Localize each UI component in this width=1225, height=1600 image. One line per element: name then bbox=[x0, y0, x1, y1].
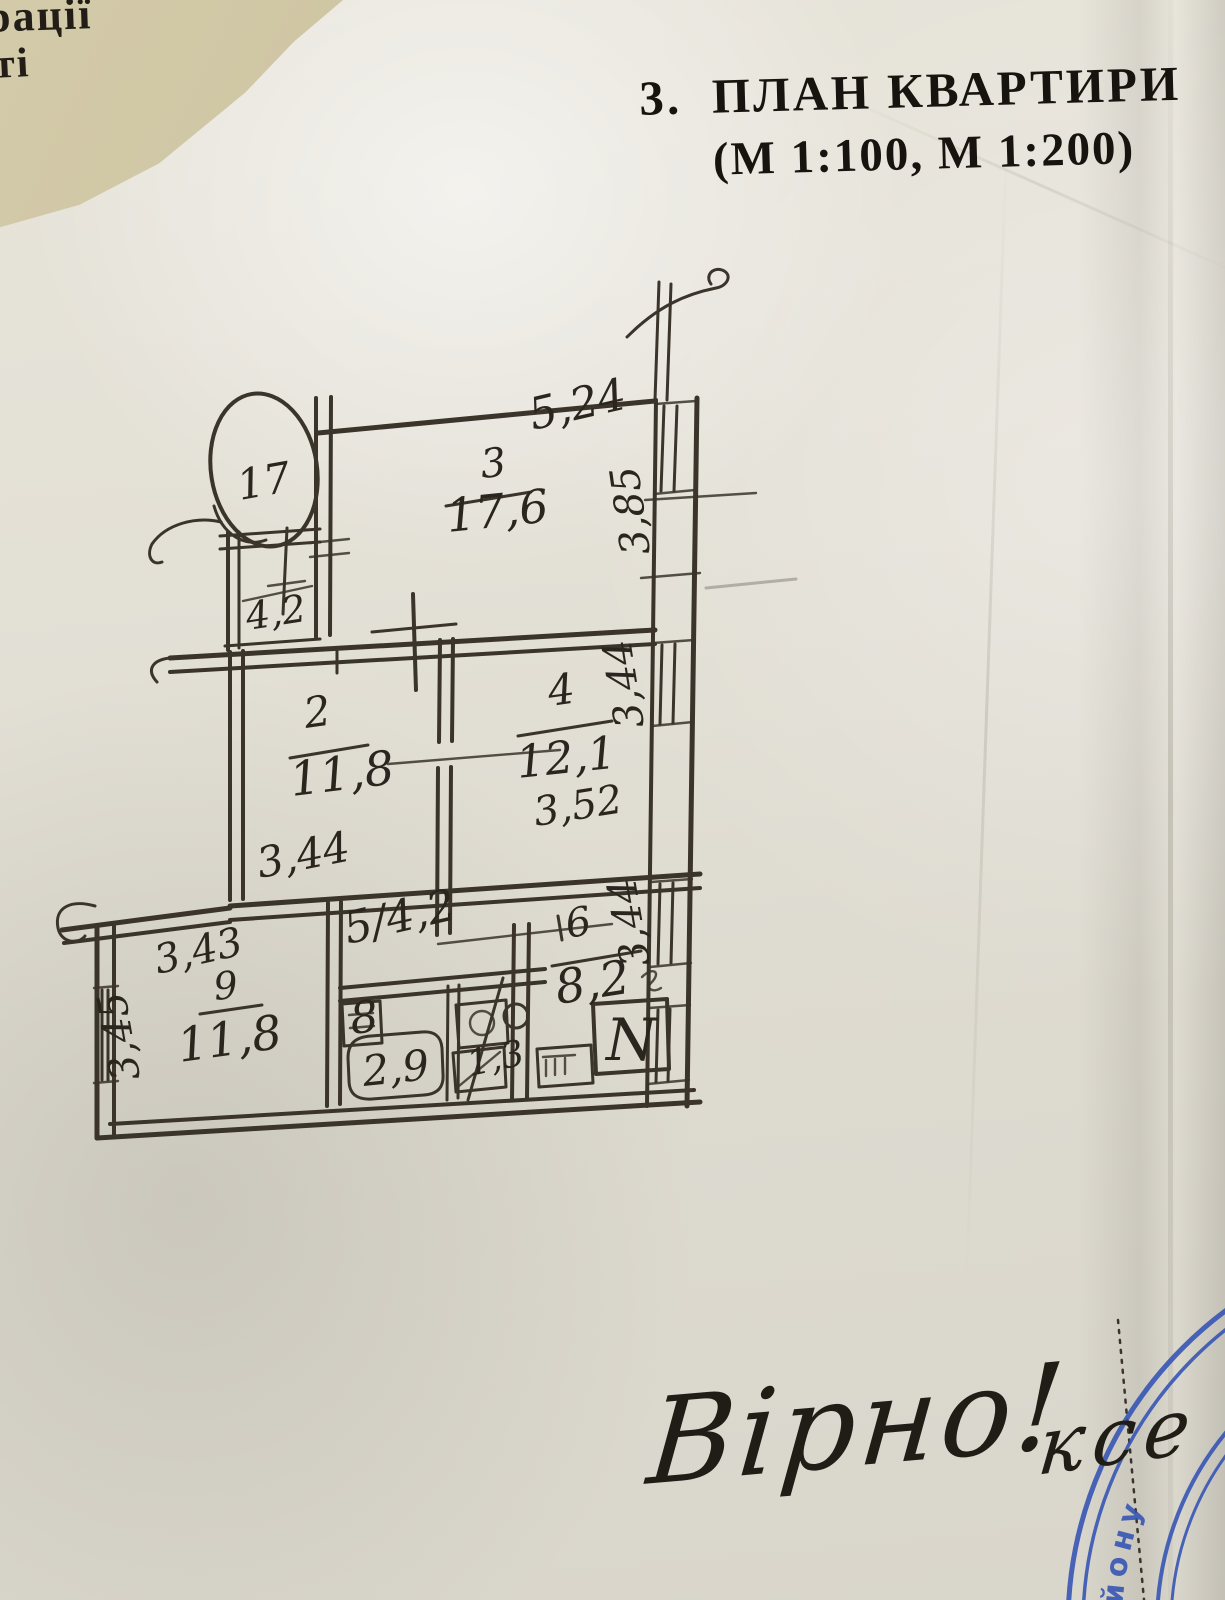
cut-text-fragment-1: рації bbox=[0, 0, 93, 43]
main-sheet: 3. ПЛАН КВАРТИРИ (М 1:100, М 1:200) bbox=[0, 0, 1225, 1600]
scanned-document-page: рації ті 3. ПЛАН КВАРТИРИ (М 1:100, М 1:… bbox=[0, 0, 1225, 1600]
cut-text-fragment-2: ті bbox=[0, 39, 32, 89]
